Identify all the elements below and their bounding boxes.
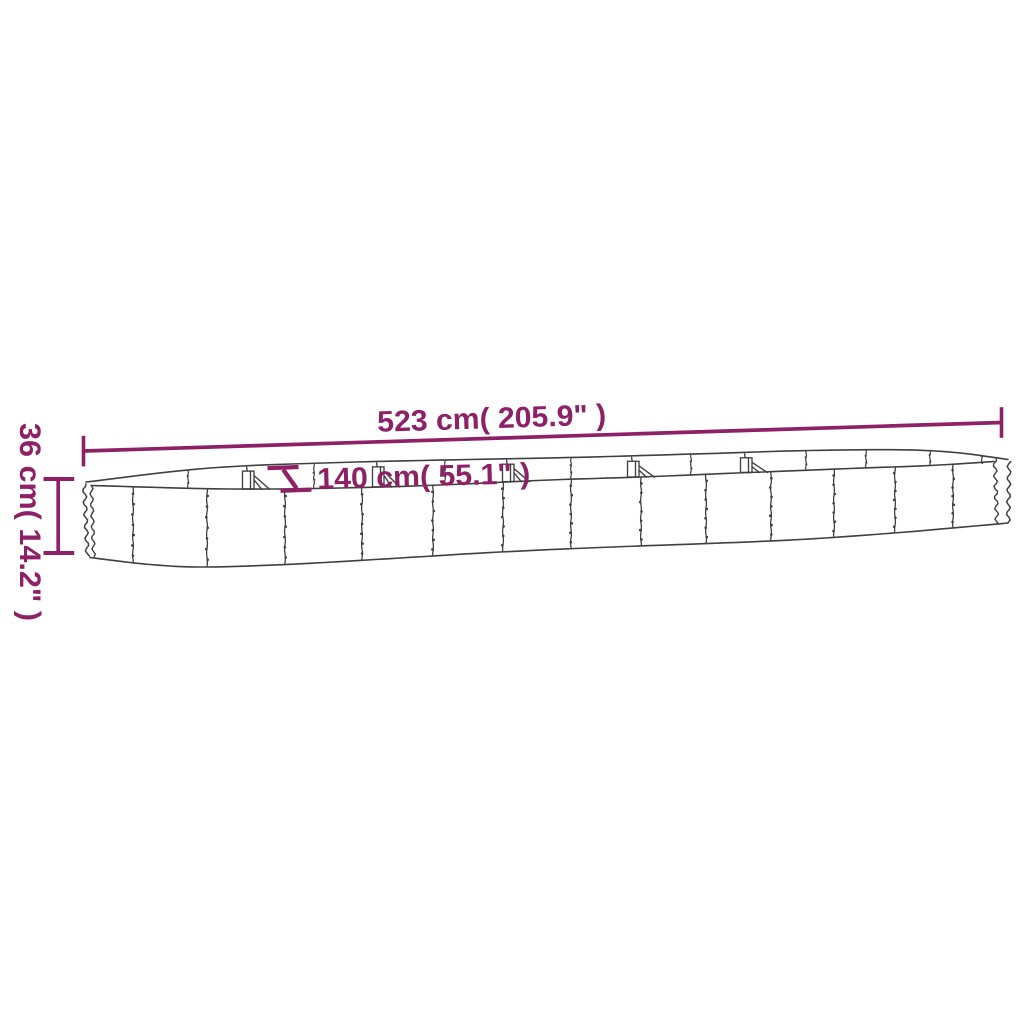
svg-text:140 cm( 55.1" ): 140 cm( 55.1" ) bbox=[317, 457, 531, 496]
svg-text:36 cm( 14.2" ): 36 cm( 14.2" ) bbox=[13, 423, 46, 621]
